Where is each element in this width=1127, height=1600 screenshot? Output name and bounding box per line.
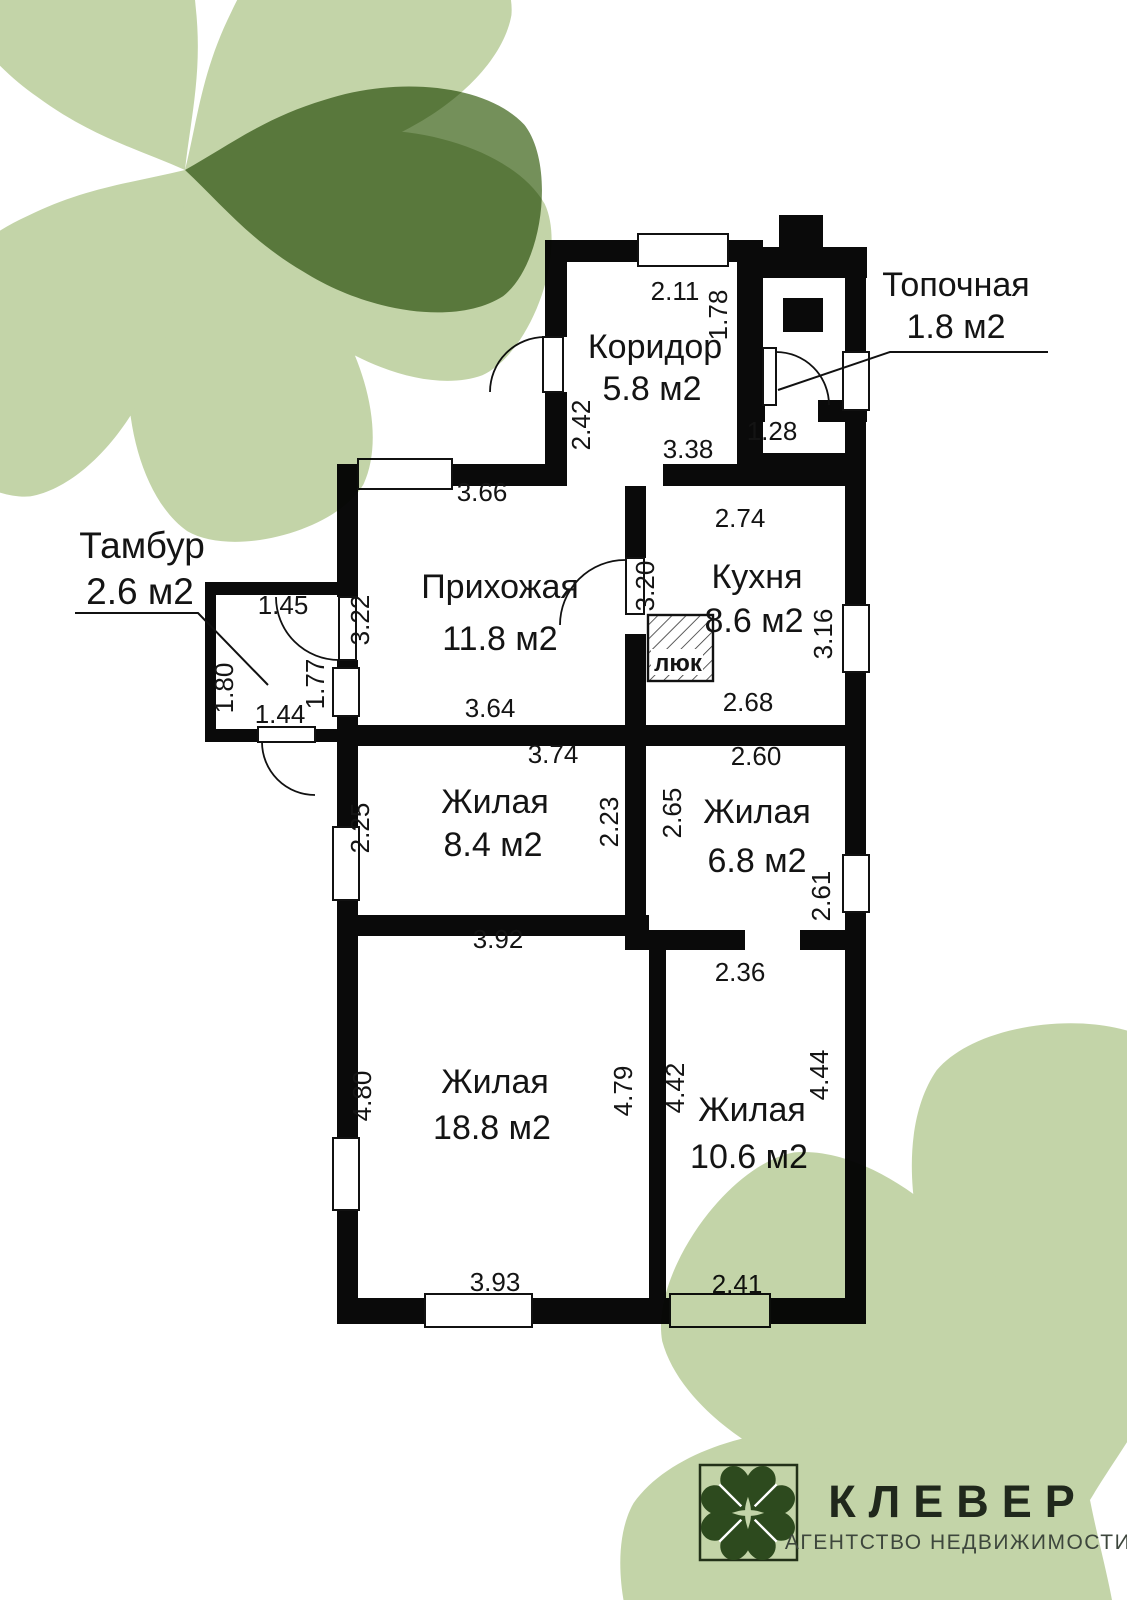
door-gap [567, 464, 663, 486]
room-name-zhilaya-10-6: Жилая [698, 1091, 806, 1129]
floor-plan-drawing: люк Коридор 5.8 м2 2.11 1.78 2.42 3.38 Т… [0, 0, 1127, 1600]
wall-segment [337, 725, 866, 746]
dim-prihozhaya-left: 3.22 [345, 595, 375, 646]
boiler-unit [783, 298, 823, 332]
room-name-zhilaya-18-8: Жилая [441, 1063, 549, 1101]
room-area-kuhnya: 8.6 м2 [705, 602, 804, 640]
door-swing-arc [776, 352, 829, 405]
room-area-topochnaya: 1.8 м2 [907, 308, 1006, 346]
dim-zhilaya-6-8-right: 2.61 [806, 871, 836, 922]
wall-segment [205, 582, 216, 742]
dim-prihozhaya-bottom: 3.64 [465, 693, 516, 723]
window [425, 1294, 532, 1327]
dim-tambur-left: 1.80 [209, 663, 239, 714]
door-leaf [543, 337, 563, 392]
room-name-koridor: Коридор [588, 328, 722, 366]
hatch-label: люк [654, 650, 703, 677]
dim-kuhnya-top: 2.74 [715, 503, 766, 533]
dim-zhilaya-10-6-left: 4.42 [660, 1063, 690, 1114]
room-area-zhilaya-8-4: 8.4 м2 [444, 826, 543, 864]
dim-kuhnya-left: 3.20 [630, 561, 660, 612]
dim-tambur-top: 1.45 [258, 590, 309, 620]
window [333, 1138, 359, 1210]
dim-koridor-bottom: 3.38 [663, 434, 714, 464]
hatch-luk: люк [648, 615, 713, 681]
dim-tambur-bottom: 1.44 [255, 699, 306, 729]
dim-koridor-inner-right: 1.78 [703, 290, 733, 341]
dim-zhilaya-18-8-left: 4.80 [347, 1071, 377, 1122]
room-name-zhilaya-8-4: Жилая [441, 783, 549, 821]
dim-zhilaya-10-6-right: 4.44 [804, 1050, 834, 1101]
room-name-topochnaya: Топочная [882, 266, 1029, 304]
dim-zhilaya-6-8-top: 2.60 [731, 741, 782, 771]
dim-koridor-left: 2.42 [566, 400, 596, 451]
dim-zhilaya-18-8-bottom: 3.93 [470, 1267, 521, 1297]
leader-line-topochnaya [778, 352, 1048, 390]
floor-plan-page: люк Коридор 5.8 м2 2.11 1.78 2.42 3.38 Т… [0, 0, 1127, 1600]
dim-kuhnya-bottom: 2.68 [723, 687, 774, 717]
leader-line-tambur [75, 613, 268, 685]
dim-zhilaya-8-4-right: 2.23 [594, 797, 624, 848]
room-area-prihozhaya: 11.8 м2 [442, 620, 557, 658]
dim-zhilaya-8-4-top: 3.74 [528, 739, 579, 769]
logo-title: КЛЕВЕР [828, 1476, 1088, 1527]
dim-zhilaya-18-8-right: 4.79 [608, 1066, 638, 1117]
room-name-tambur: Тамбур [79, 525, 205, 566]
logo-subtitle: АГЕНТСТВО НЕДВИЖИМОСТИ [785, 1531, 1127, 1554]
room-area-zhilaya-18-8: 18.8 м2 [433, 1109, 551, 1147]
dim-zhilaya-6-8-left: 2.65 [657, 788, 687, 839]
window [843, 605, 869, 672]
window [333, 668, 359, 716]
window [358, 459, 452, 489]
dim-topochnaya-door: 1.28 [747, 416, 798, 446]
room-area-koridor: 5.8 м2 [603, 370, 702, 408]
chimney [779, 215, 823, 247]
door-gap [745, 930, 800, 950]
dim-zhilaya-18-8-top: 3.92 [473, 924, 524, 954]
door-swing-arc [262, 742, 315, 795]
room-area-tambur: 2.6 м2 [86, 571, 194, 612]
room-name-prihozhaya: Прихожая [421, 568, 579, 606]
room-name-kuhnya: Кухня [712, 558, 803, 596]
room-name-zhilaya-6-8: Жилая [703, 793, 811, 831]
wall-segment [649, 930, 666, 1324]
dim-koridor-top: 2.11 [651, 276, 700, 306]
window [843, 855, 869, 912]
dim-zhilaya-8-4-left: 2.25 [345, 803, 375, 854]
window [638, 234, 728, 266]
dim-zhilaya-10-6-top: 2.36 [715, 957, 766, 987]
dim-kuhnya-right: 3.16 [808, 609, 838, 660]
door-leaf [258, 727, 315, 742]
dim-prihozhaya-top: 3.66 [457, 477, 508, 507]
door-leaf [763, 348, 776, 405]
room-area-zhilaya-6-8: 6.8 м2 [708, 842, 807, 880]
